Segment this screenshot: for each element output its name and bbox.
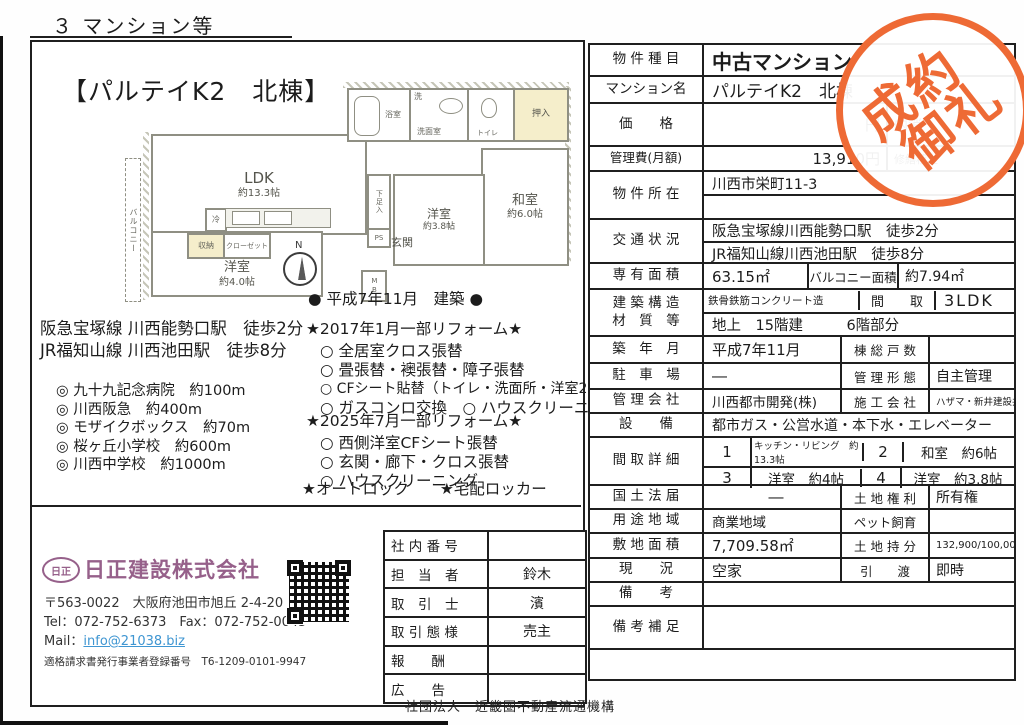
wall-hatch-left	[143, 132, 149, 300]
station-line: 阪急宝塚線 川西能勢口駅 徒歩2分	[40, 318, 303, 340]
scan-edge-bottom	[0, 721, 448, 725]
reform-item: ○ CFシート貼替（トイレ・洗面所・洋室2部屋）	[320, 380, 629, 399]
qr-eye	[335, 560, 351, 576]
company-address: 〒563-0022 大阪府池田市旭丘 2-4-20	[44, 592, 283, 611]
reform-2017-title: ★2017年1月一部リフォーム★	[306, 320, 522, 339]
room-washitsu: 和室 約6.0帖	[481, 148, 569, 266]
row-built: 築 年 月 平成7年11月 棟 総 戸 数	[590, 337, 1014, 364]
station-line: JR福知山線 川西池田駅 徒歩8分	[40, 340, 303, 362]
nearby-list: ◎ 九十九記念病院 約100m ◎ 川西阪急 約400m ◎ モザイクボックス …	[56, 382, 250, 475]
bathtub-icon	[354, 96, 380, 136]
west-room-size: 約4.0帖	[219, 277, 255, 290]
table-row: 取 引 態 様売主	[385, 618, 585, 647]
mail-link[interactable]: info@21038.biz	[83, 634, 185, 649]
oshiire: 押入	[513, 88, 569, 142]
row-structure: 建 築 構 造材 質 等 鉄骨鉄筋コンクリート造 間 取 3LDK 地上 15階…	[590, 290, 1014, 337]
floor-plan: バルコニー LDK 約13.3帖 洋室 約4.0帖 収納 クローゼット 冷 浴室…	[135, 86, 569, 300]
built-note: ● 平成7年11月 建築 ●	[308, 290, 483, 309]
page-header: ３ マンション等	[52, 10, 214, 39]
row-parking: 駐 車 場 ― 管 理 形 態 自主管理	[590, 364, 1014, 390]
header-underline	[30, 36, 292, 38]
company-mail-line: Mail：info@21038.biz	[44, 630, 185, 649]
reform-2017-list: ○ 全居室クロス張替 ○ 畳張替・襖張替・障子張替 ○ CFシート貼替（トイレ・…	[320, 342, 629, 418]
reform-item: ○ 畳張替・襖張替・障子張替	[320, 361, 629, 380]
pipe-shaft: PS	[367, 228, 391, 248]
row-land-law: 国 土 法 届 ― 土 地 権 利 所有権	[590, 486, 1014, 510]
compass: N	[283, 252, 317, 286]
station-access: 阪急宝塚線 川西能勢口駅 徒歩2分 JR福知山線 川西池田駅 徒歩8分	[40, 318, 303, 362]
company-logo: 日正	[42, 557, 80, 583]
kitchen-counter	[225, 208, 331, 228]
nearby-item: ◎ 川西阪急 約400m	[56, 401, 250, 420]
toilet-room: トイレ	[467, 88, 517, 142]
fridge: 冷	[205, 208, 227, 232]
reform-item: ○ 玄関・廊下・クロス張替	[320, 453, 509, 472]
reform-item: ○ 西側洋室CFシート張替	[320, 434, 509, 453]
bath-label: 浴室	[385, 110, 401, 120]
shoe-box: 下足入	[367, 174, 391, 230]
nearby-item: ◎ 桜ヶ丘小学校 約600m	[56, 438, 250, 457]
company-name: 日正建設株式会社	[84, 554, 260, 584]
row-remarks: 備 考	[590, 583, 1014, 607]
north-label: N	[295, 240, 302, 251]
west-room-label: 洋室	[224, 260, 250, 276]
row-management: 管 理 会 社 川西都市開発(株) 施 工 会 社 ハザマ・新井建設共同企業体	[590, 390, 1014, 414]
washitsu-size: 約6.0帖	[507, 209, 543, 222]
features-line: ★オートロック ★宅配ロッカー	[302, 480, 547, 499]
row-access: 交 通 状 況 阪急宝塚線川西能勢口駅 徒歩2分 JR福知山線川西池田駅 徒歩8…	[590, 220, 1014, 264]
property-flyer-page: ３ マンション等 【パルテイK2 北棟】 バルコニー LDK 約13.3帖 洋室…	[0, 0, 1024, 725]
row-area: 専 有 面 積 63.15㎡ バルコニー面積 約7.94㎡	[590, 264, 1014, 290]
table-row: 担 当 者鈴木	[385, 561, 585, 590]
toilet-icon	[481, 98, 497, 118]
washitsu-label: 和室	[512, 193, 538, 209]
row-layout-detail: 間 取 詳 細 1 キッチン・リビング 約13.3帖 2 和室 約6帖 3 洋室…	[590, 438, 1014, 486]
kitchen-sink	[232, 211, 260, 225]
row-remarks-supplement: 備 考 補 足	[590, 607, 1014, 650]
washroom: 洗 洗面室	[409, 88, 471, 142]
balcony: バルコニー	[125, 158, 141, 302]
invoice-number: 適格請求書発行事業者登録番号 T6-1209-0101-9947	[44, 654, 306, 669]
sold-stamp-text: 成約 御礼	[859, 37, 1007, 183]
sold-stamp: 成約 御礼	[836, 13, 1024, 207]
reform-item: ○ 全居室クロス張替	[320, 342, 629, 361]
kitchen-stove	[264, 211, 292, 225]
mail-label: Mail：	[44, 634, 83, 649]
sink-icon	[439, 98, 463, 114]
reform-2025-title: ★2025年7月一部リフォーム★	[306, 412, 522, 431]
washroom-label: 洗面室	[417, 127, 441, 137]
mid-room-label: 洋室	[427, 207, 451, 222]
nearby-item: ◎ 九十九記念病院 約100m	[56, 382, 250, 401]
toilet-label: トイレ	[477, 129, 498, 138]
table-row: 報 酬	[385, 647, 585, 676]
left-panel-divider	[32, 505, 581, 507]
laundry-label: 洗	[414, 92, 422, 102]
room-mid: 洋室 約3.8帖	[393, 174, 485, 266]
row-status: 現 況 空家 引 渡 即時	[590, 559, 1014, 583]
qr-code	[287, 560, 351, 624]
qr-eye	[287, 608, 303, 624]
ldk-label: LDK	[244, 169, 274, 188]
mid-room-size: 約3.8帖	[423, 222, 455, 233]
row-site-area: 敷 地 面 積 7,709.58㎡ 土 地 持 分 132,900/100,00…	[590, 534, 1014, 559]
table-row: 社 内 番 号	[385, 532, 585, 561]
row-zoning: 用 途 地 域 商業地域 ペット飼育	[590, 510, 1014, 534]
row-facilities: 設 備 都市ガス・公営水道・本下水・エレベーター	[590, 414, 1014, 438]
genkan-label: 玄関	[391, 234, 413, 250]
company-telfax: Tel：072-752-6373 Fax：072-752-0045	[44, 611, 306, 630]
compass-needle-icon	[298, 256, 306, 280]
page-footer: 社団法人 近畿圏不動産流通機構	[405, 696, 615, 715]
ldk-size: 約13.3帖	[238, 188, 280, 201]
qr-eye	[287, 560, 303, 576]
agent-table: 社 内 番 号 担 当 者鈴木 取 引 士濱 取 引 態 様売主 報 酬 広 告	[383, 530, 587, 704]
scan-edge-left	[0, 36, 3, 725]
nearby-item: ◎ モザイクボックス 約70m	[56, 419, 250, 438]
closet: クローゼット	[223, 233, 271, 259]
row-blank	[590, 650, 1014, 679]
table-row: 取 引 士濱	[385, 589, 585, 618]
storage: 収納	[187, 233, 225, 259]
bathroom: 浴室	[347, 88, 413, 142]
nearby-item: ◎ 川西中学校 約1000m	[56, 456, 250, 475]
